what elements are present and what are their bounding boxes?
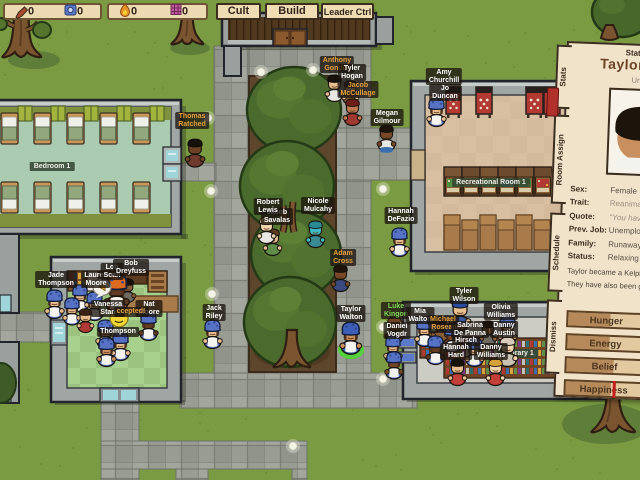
svg-text:0: 0: [28, 6, 34, 18]
svg-text:0: 0: [182, 6, 188, 18]
svg-text:0: 0: [131, 6, 137, 18]
svg-text:0: 0: [77, 6, 83, 18]
